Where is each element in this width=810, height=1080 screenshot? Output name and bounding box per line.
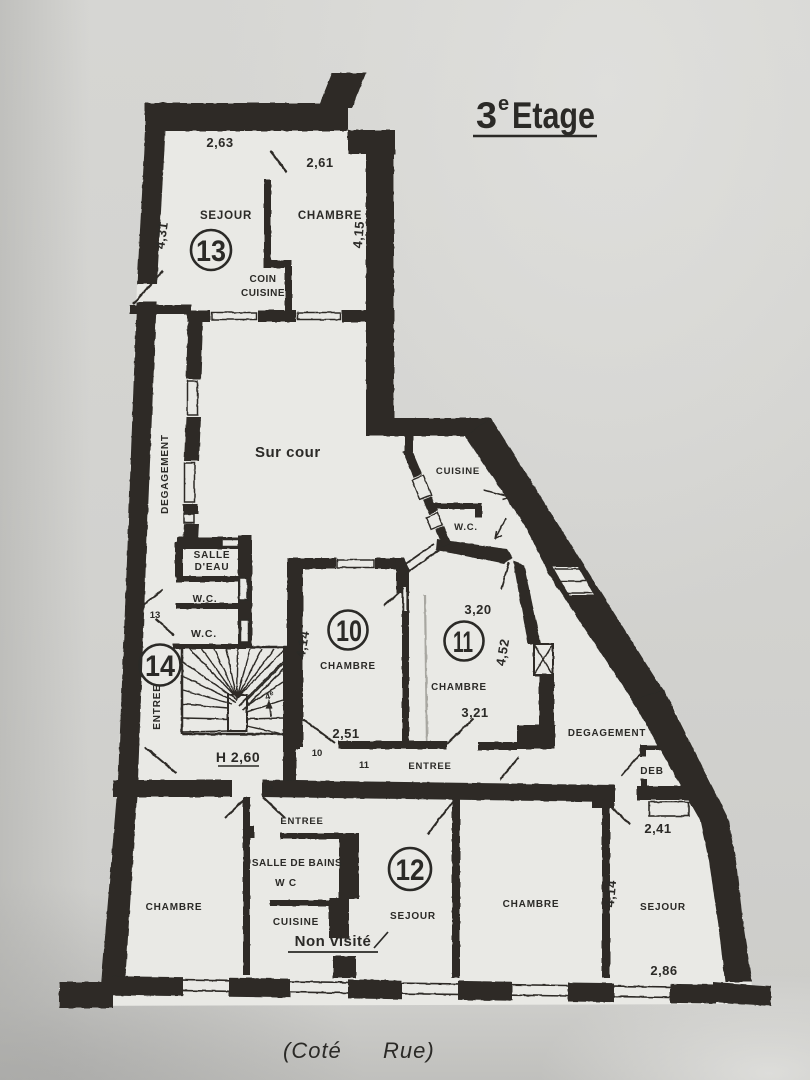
svg-text:4,14: 4,14 bbox=[602, 879, 619, 908]
svg-text:e: e bbox=[498, 93, 509, 115]
svg-text:2,41: 2,41 bbox=[644, 821, 671, 836]
svg-text:3: 3 bbox=[476, 95, 497, 136]
svg-text:SALLE DE BAINS: SALLE DE BAINS bbox=[252, 858, 342, 869]
svg-text:CHAMBRE: CHAMBRE bbox=[320, 661, 376, 672]
svg-text:2,63: 2,63 bbox=[206, 135, 233, 150]
svg-text:2,51: 2,51 bbox=[332, 726, 359, 741]
svg-text:W.C.: W.C. bbox=[193, 594, 218, 605]
svg-text:H 2,60: H 2,60 bbox=[216, 749, 260, 765]
svg-text:10: 10 bbox=[336, 615, 362, 648]
svg-text:13: 13 bbox=[196, 235, 226, 268]
svg-text:CHAMBRE: CHAMBRE bbox=[431, 682, 487, 693]
svg-text:W.C.: W.C. bbox=[191, 628, 217, 640]
svg-text:11: 11 bbox=[453, 626, 473, 659]
svg-text:W C: W C bbox=[275, 878, 297, 889]
svg-text:DEB: DEB bbox=[640, 766, 664, 777]
svg-text:13: 13 bbox=[150, 610, 161, 621]
svg-text:Non visité: Non visité bbox=[295, 933, 372, 950]
svg-text:10: 10 bbox=[312, 748, 323, 759]
svg-text:D'EAU: D'EAU bbox=[195, 562, 230, 573]
svg-text:CUISINE: CUISINE bbox=[241, 288, 285, 299]
svg-text:DEGAGEMENT: DEGAGEMENT bbox=[568, 728, 646, 739]
svg-text:SEJOUR: SEJOUR bbox=[200, 210, 252, 222]
svg-text:2,61: 2,61 bbox=[306, 155, 333, 170]
svg-text:CHAMBRE: CHAMBRE bbox=[298, 210, 362, 222]
svg-text:Etage: Etage bbox=[512, 95, 595, 136]
svg-text:2,86: 2,86 bbox=[650, 963, 677, 978]
svg-text:ENTREE: ENTREE bbox=[280, 816, 323, 827]
svg-text:ENTREE: ENTREE bbox=[152, 684, 163, 729]
svg-text:14: 14 bbox=[145, 650, 175, 683]
svg-text:CHAMBRE: CHAMBRE bbox=[146, 902, 203, 913]
svg-text:W.C.: W.C. bbox=[454, 522, 478, 533]
svg-text:DEGAGEMENT: DEGAGEMENT bbox=[160, 434, 171, 514]
svg-text:CHAMBRE: CHAMBRE bbox=[503, 899, 560, 910]
svg-text:COIN: COIN bbox=[250, 274, 277, 285]
svg-text:3,20: 3,20 bbox=[464, 602, 491, 617]
svg-text:CUISINE: CUISINE bbox=[273, 917, 319, 928]
svg-text:11: 11 bbox=[359, 760, 370, 771]
svg-text:3,21: 3,21 bbox=[461, 705, 488, 720]
svg-text:(Coté: (Coté bbox=[283, 1038, 342, 1063]
svg-text:12: 12 bbox=[396, 854, 425, 887]
svg-text:4,15: 4,15 bbox=[350, 220, 367, 249]
svg-text:12: 12 bbox=[263, 784, 274, 795]
svg-text:CUISINE: CUISINE bbox=[436, 466, 480, 477]
svg-text:SEJOUR: SEJOUR bbox=[390, 911, 436, 922]
svg-text:Sur cour: Sur cour bbox=[255, 444, 321, 461]
svg-text:Rue): Rue) bbox=[383, 1038, 435, 1063]
svg-text:SALLE: SALLE bbox=[194, 550, 231, 561]
svg-text:SEJOUR: SEJOUR bbox=[640, 902, 686, 913]
svg-text:ENTREE: ENTREE bbox=[408, 761, 451, 772]
